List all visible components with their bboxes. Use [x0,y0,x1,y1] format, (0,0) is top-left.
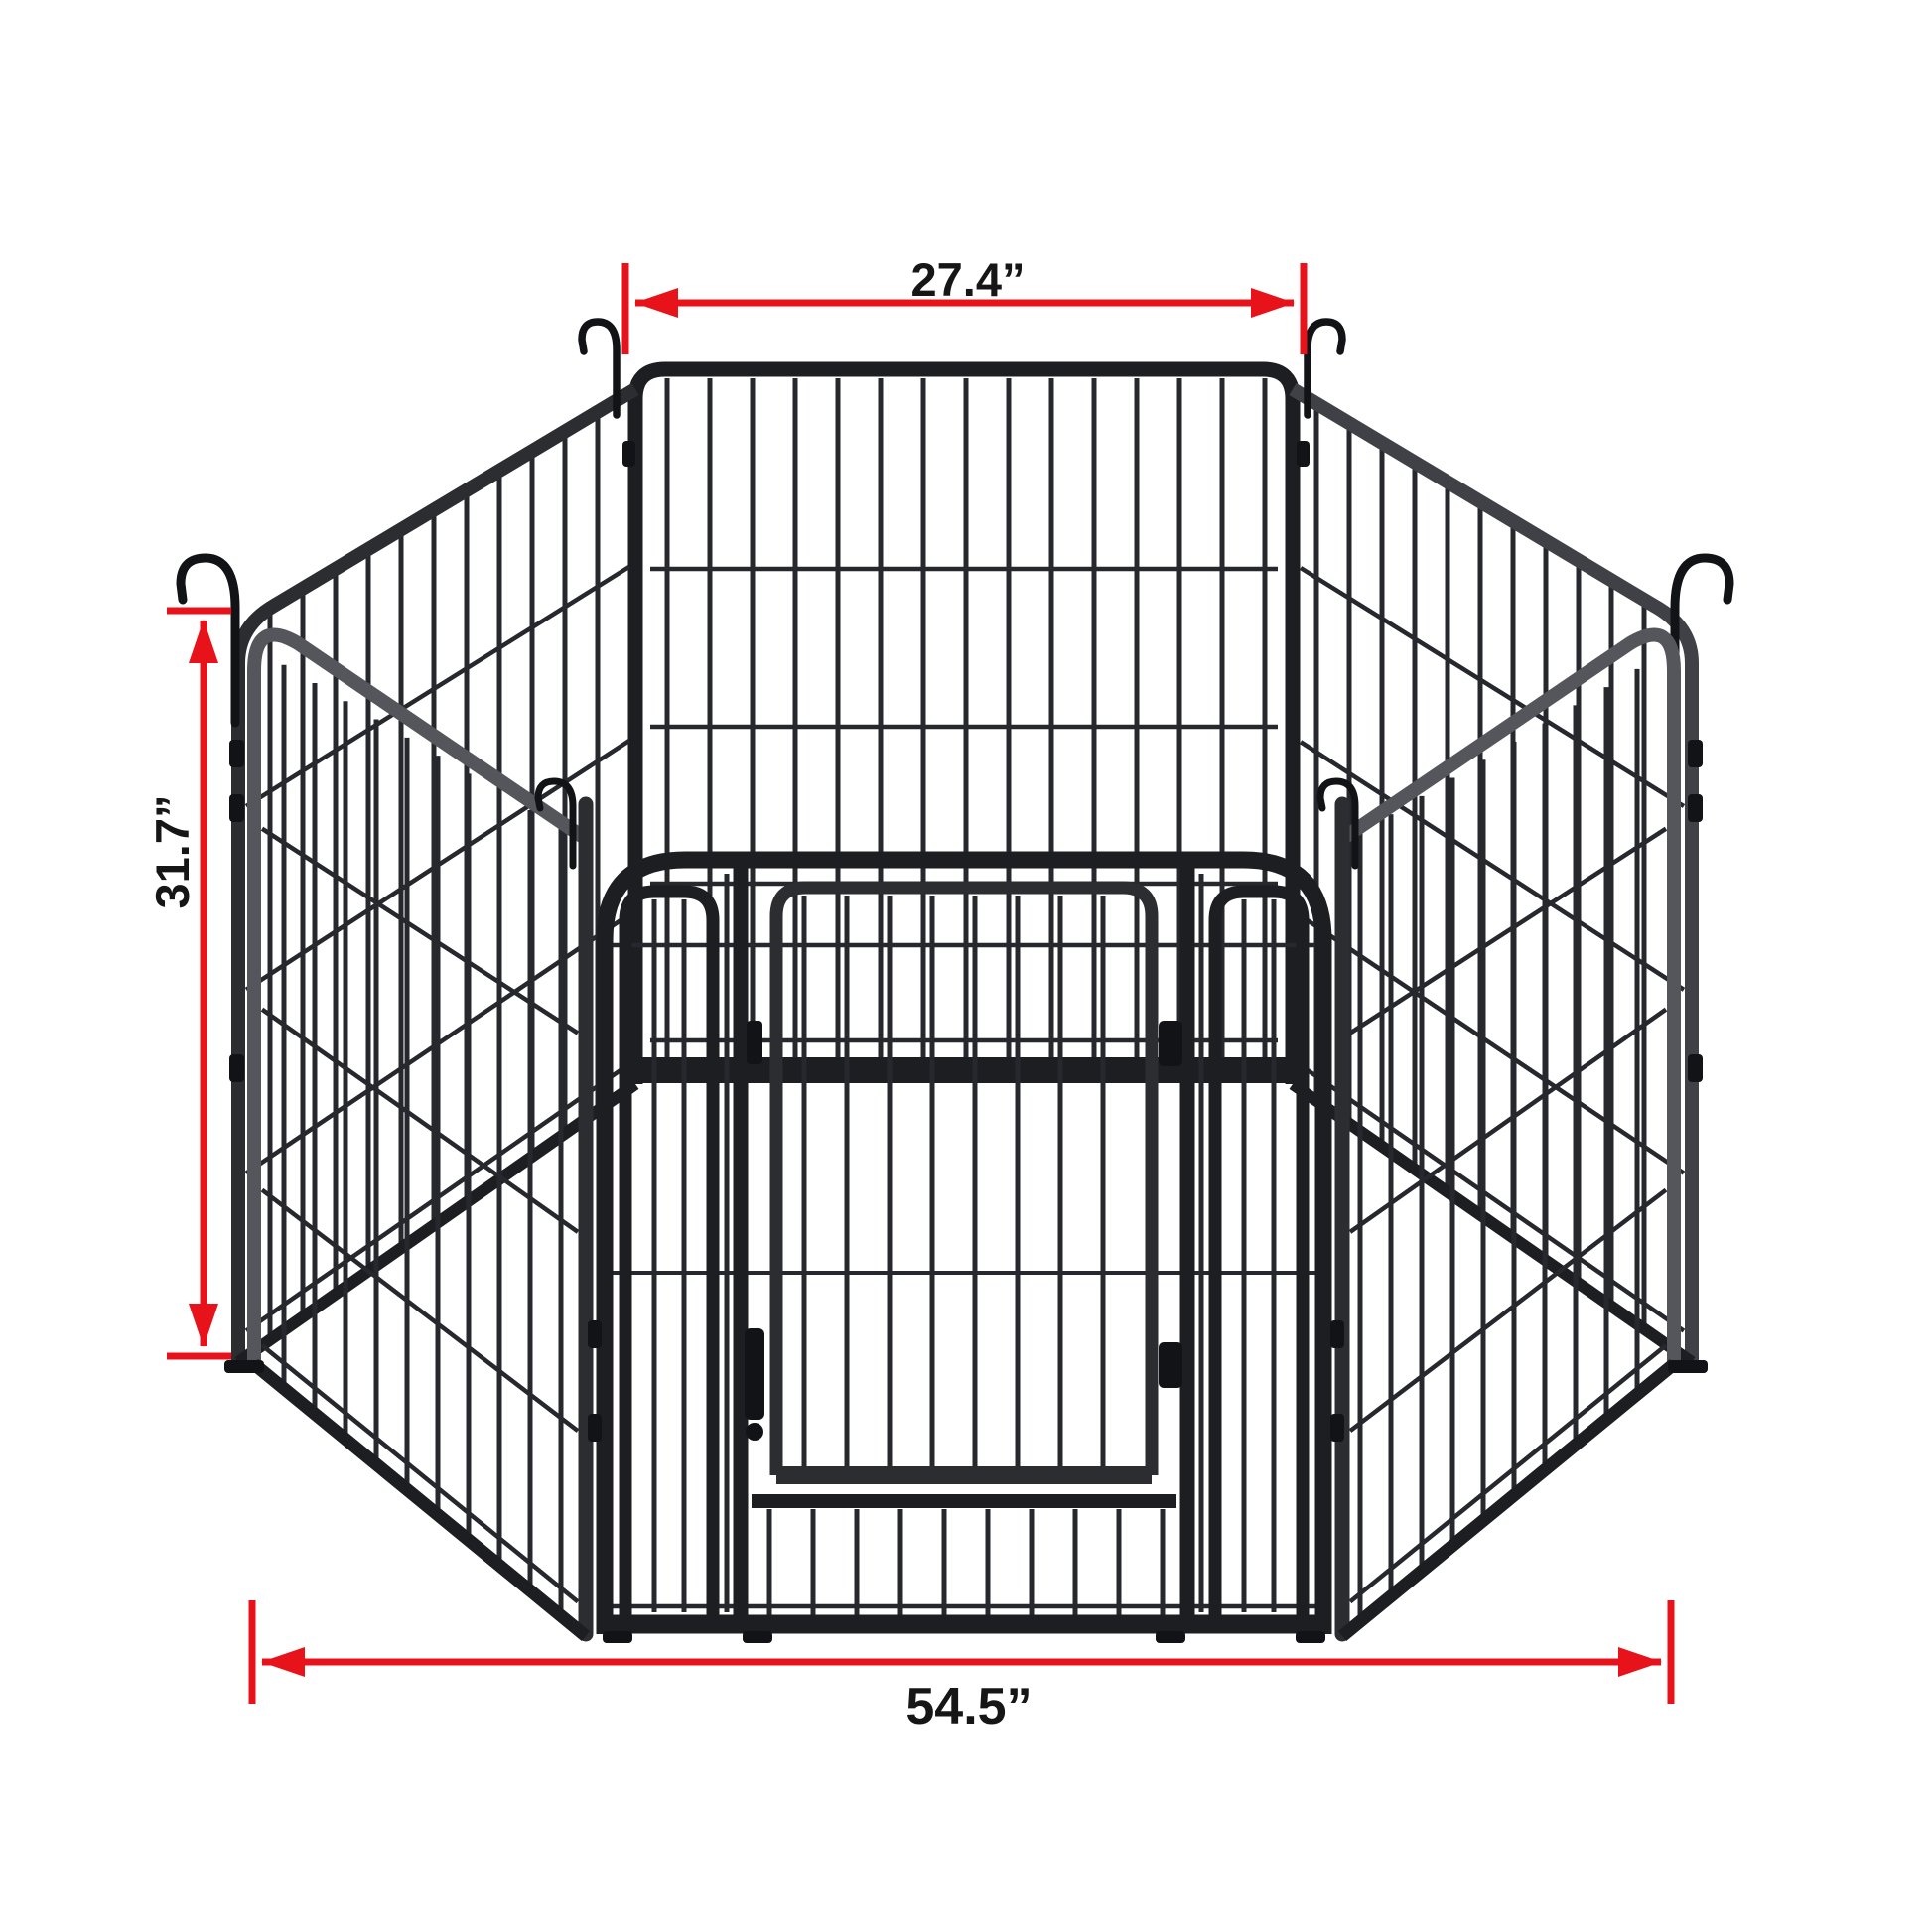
dimension-top-label: 27.4” [911,253,1026,306]
foot [224,1360,264,1373]
hinge-tab [1330,1414,1344,1442]
grid-wire [1350,1010,1666,1232]
grid-wire [1301,568,1684,806]
gate-door-grid [804,896,1103,1467]
hinge-tab [1688,794,1703,822]
hinge-tab [588,1320,602,1348]
hinge-tab [229,1054,244,1082]
foot [1668,1360,1708,1373]
grid-wire [1350,829,1666,1034]
door-latch-keeper [747,1021,762,1064]
door-latch-knob [746,1423,763,1441]
playpen-illustration: 27.4” 31.7” 54.5” [0,0,1932,1932]
foot [1296,1631,1325,1643]
hinge-tab [1297,441,1310,467]
hinge-tab [588,1414,602,1442]
hook-far-left-icon [181,558,235,723]
back-panel [629,369,1299,1084]
hinge-tab [622,441,635,467]
foot [1156,1631,1185,1643]
front-right-panel-grid [1350,669,1666,1617]
hinge-tab [1688,740,1703,767]
foot [743,1631,772,1643]
foot [603,1631,632,1643]
hinge-tab [1688,1054,1703,1082]
door-hinge-bottom [1159,1342,1182,1388]
front-left-bottom-rail [254,1364,586,1636]
grid-wire [1350,1345,1666,1601]
dimension-left-label: 31.7” [146,795,199,909]
door-latch-handle [745,1328,764,1420]
hinge-tab [1330,1320,1344,1348]
dimension-bottom-label: 54.5” [905,1678,1032,1735]
product-dimension-diagram: 27.4” 31.7” 54.5” [0,0,1932,1932]
door-hinge-top [1159,1021,1182,1066]
dimension-top: 27.4” [625,253,1304,354]
hinge-tab [229,794,244,822]
hinge-tab [229,740,244,767]
dimension-left: 31.7” [146,611,231,1356]
